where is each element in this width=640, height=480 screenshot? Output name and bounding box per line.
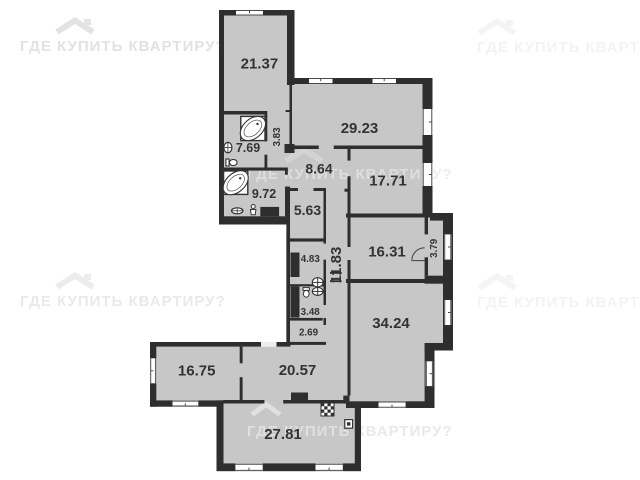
svg-text:5.63: 5.63 <box>294 202 321 218</box>
svg-text:16.75: 16.75 <box>178 362 216 379</box>
svg-text:8.64: 8.64 <box>305 161 332 177</box>
svg-text:3.83: 3.83 <box>272 127 283 147</box>
svg-text:ГДЕ КУПИТЬ КВАРТИРУ?: ГДЕ КУПИТЬ КВАРТИРУ? <box>20 293 226 310</box>
svg-text:2.69: 2.69 <box>299 327 319 338</box>
svg-text:27.81: 27.81 <box>264 426 302 443</box>
svg-text:7.69: 7.69 <box>236 141 260 155</box>
svg-text:16.31: 16.31 <box>368 244 406 261</box>
svg-text:29.23: 29.23 <box>341 120 379 137</box>
svg-text:3.48: 3.48 <box>301 307 321 318</box>
svg-text:11.83: 11.83 <box>328 247 345 284</box>
svg-text:34.24: 34.24 <box>372 315 410 332</box>
svg-text:4.83: 4.83 <box>301 254 321 265</box>
svg-text:ГДЕ КУПИТЬ КВАРТИРУ?: ГДЕ КУПИТЬ КВАРТИРУ? <box>477 39 640 56</box>
svg-text:20.57: 20.57 <box>279 362 317 379</box>
svg-text:17.71: 17.71 <box>369 173 407 190</box>
svg-text:ГДЕ КУПИТЬ КВАРТИРУ?: ГДЕ КУПИТЬ КВАРТИРУ? <box>20 38 226 55</box>
svg-text:21.37: 21.37 <box>241 56 279 73</box>
svg-text:9.72: 9.72 <box>252 187 276 201</box>
svg-text:3.79: 3.79 <box>429 238 440 258</box>
svg-text:ГДЕ КУПИТЬ КВАРТИРУ?: ГДЕ КУПИТЬ КВАРТИРУ? <box>477 294 640 311</box>
